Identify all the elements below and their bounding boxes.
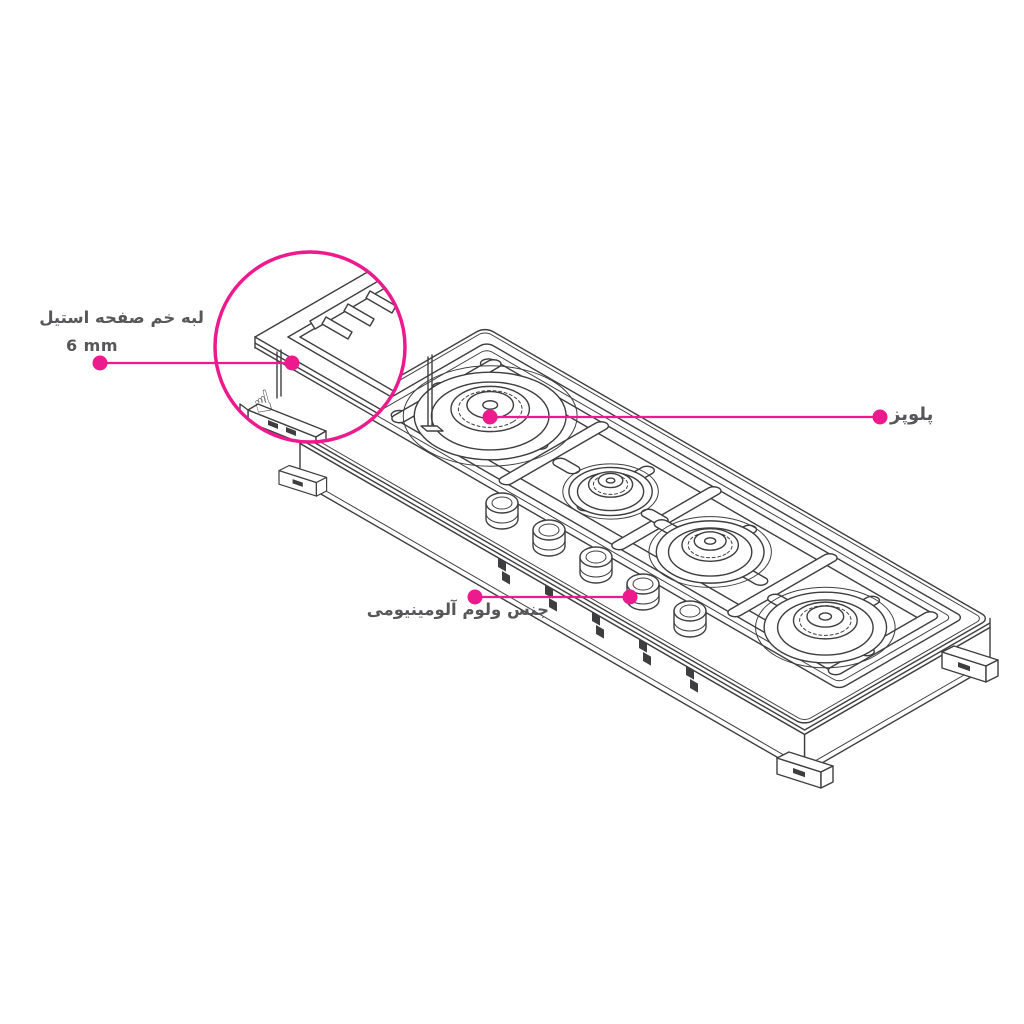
cooktop-line-art: ☝ [0,0,1024,1024]
label-steel-edge: لبه خم صفحه استیل [10,308,204,329]
knob-2 [533,520,565,556]
product-diagram: ☝ لبه خم صفحه استیل 6 mm پلوپز جنس ولوم … [0,0,1024,1024]
label-edge-value: 6 mm [54,336,130,356]
label-knob-material: جنس ولوم آلومینیومی [357,600,549,621]
knob-3 [580,547,612,583]
label-burner: پلوپز [890,404,1010,427]
knob-5 [674,601,706,637]
knob-1 [486,493,518,529]
